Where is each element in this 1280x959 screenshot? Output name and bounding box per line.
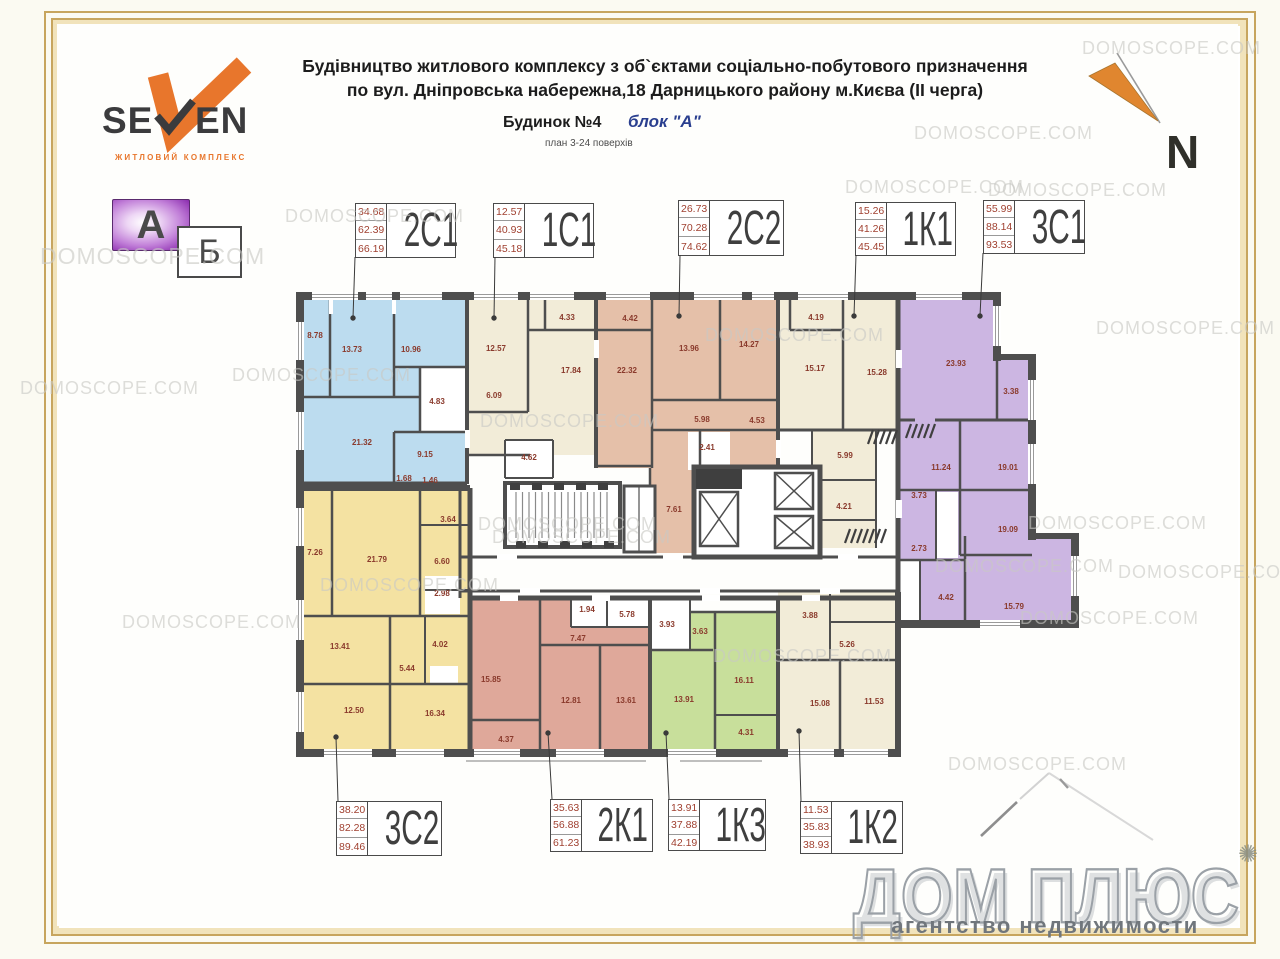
svg-text:3.73: 3.73 [911, 491, 927, 500]
svg-text:5.78: 5.78 [619, 610, 635, 619]
svg-text:22.32: 22.32 [617, 366, 638, 375]
svg-text:3.63: 3.63 [692, 627, 708, 636]
svg-text:12.50: 12.50 [344, 706, 365, 715]
svg-text:4.83: 4.83 [429, 397, 445, 406]
svg-text:15.85: 15.85 [481, 675, 502, 684]
svg-text:1.46: 1.46 [422, 476, 438, 485]
svg-text:13.61: 13.61 [616, 696, 637, 705]
svg-text:4.42: 4.42 [938, 593, 954, 602]
svg-text:13.73: 13.73 [342, 345, 363, 354]
svg-text:5.44: 5.44 [399, 664, 415, 673]
svg-text:8.78: 8.78 [307, 331, 323, 340]
svg-text:17.84: 17.84 [561, 366, 582, 375]
svg-text:4.19: 4.19 [808, 313, 824, 322]
svg-text:3.93: 3.93 [659, 620, 675, 629]
svg-text:12.57: 12.57 [486, 344, 507, 353]
svg-text:1.94: 1.94 [579, 605, 595, 614]
svg-text:4.02: 4.02 [432, 640, 448, 649]
svg-text:11.53: 11.53 [864, 697, 884, 706]
svg-text:4.21: 4.21 [836, 502, 852, 511]
svg-text:16.11: 16.11 [734, 676, 754, 685]
svg-text:7.61: 7.61 [666, 505, 682, 514]
svg-text:15.08: 15.08 [810, 699, 831, 708]
svg-text:10.96: 10.96 [401, 345, 422, 354]
svg-text:7.47: 7.47 [570, 634, 586, 643]
svg-text:5.98: 5.98 [694, 415, 710, 424]
svg-text:2.73: 2.73 [911, 544, 927, 553]
svg-text:13.41: 13.41 [330, 642, 351, 651]
svg-text:13.96: 13.96 [679, 344, 700, 353]
svg-text:1.68: 1.68 [396, 474, 412, 483]
svg-text:4.53: 4.53 [749, 416, 765, 425]
svg-text:3.88: 3.88 [802, 611, 818, 620]
svg-text:21.32: 21.32 [352, 438, 373, 447]
svg-text:4.62: 4.62 [521, 453, 537, 462]
svg-text:4.42: 4.42 [622, 314, 638, 323]
svg-text:4.33: 4.33 [559, 313, 575, 322]
svg-text:19.09: 19.09 [998, 525, 1019, 534]
svg-text:2.41: 2.41 [699, 443, 715, 452]
svg-text:3.38: 3.38 [1003, 387, 1019, 396]
svg-text:9.15: 9.15 [417, 450, 433, 459]
svg-text:6.60: 6.60 [434, 557, 450, 566]
svg-text:11.24: 11.24 [931, 463, 951, 472]
svg-text:7.26: 7.26 [307, 548, 323, 557]
svg-text:19.01: 19.01 [998, 463, 1019, 472]
svg-text:12.81: 12.81 [561, 696, 582, 705]
svg-text:4.37: 4.37 [498, 735, 514, 744]
svg-text:6.09: 6.09 [486, 391, 502, 400]
svg-text:15.17: 15.17 [805, 364, 826, 373]
svg-text:4.31: 4.31 [738, 728, 754, 737]
svg-text:5.99: 5.99 [837, 451, 853, 460]
svg-text:13.91: 13.91 [674, 695, 695, 704]
svg-text:16.34: 16.34 [425, 709, 446, 718]
svg-text:15.28: 15.28 [867, 368, 888, 377]
svg-text:21.79: 21.79 [367, 555, 388, 564]
svg-text:3.64: 3.64 [440, 515, 456, 524]
svg-text:23.93: 23.93 [946, 359, 967, 368]
